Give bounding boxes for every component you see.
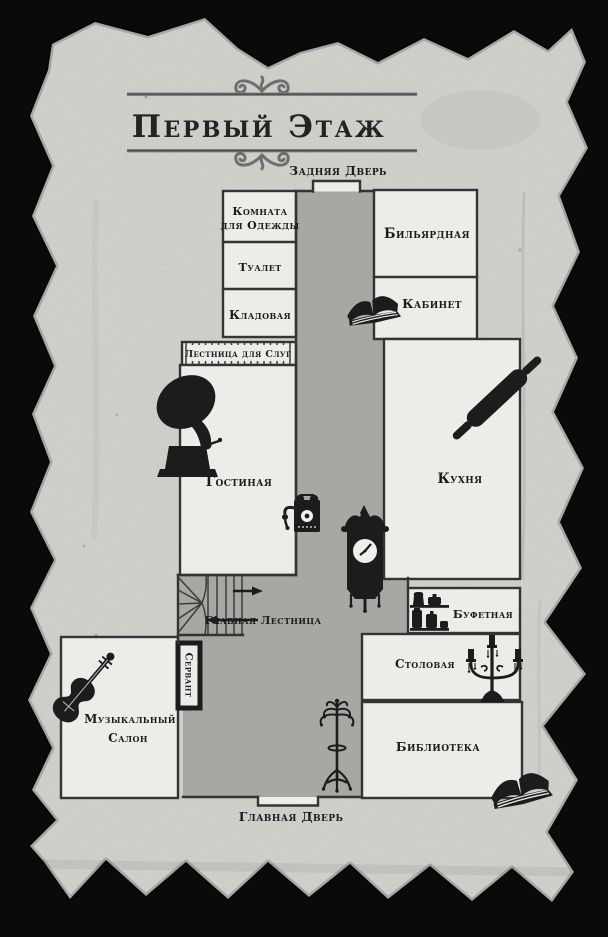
page-title: Первый Этаж	[132, 109, 387, 145]
title-ornament-top	[236, 77, 289, 93]
title-rule-top-core	[127, 94, 417, 95]
cloakroom-label-line1: Комната	[232, 205, 287, 218]
dining-label: Столовая	[395, 657, 455, 671]
music-salon-label-line1: Музыкальный	[84, 712, 176, 726]
floor-plan-svg: Первый Этаж	[0, 0, 608, 937]
billiard-label: Бильярдная	[384, 226, 470, 242]
toilet-label: Туалет	[238, 260, 281, 274]
main-door-label: Главная Дверь	[239, 809, 344, 824]
main-door	[258, 797, 318, 806]
floor-plan-illustration: Первый Этаж	[0, 0, 608, 937]
title-ornament-bottom	[236, 153, 289, 169]
living-room-label: Гостиная	[206, 474, 273, 490]
servants-stairs-label: Лестница для Слуг	[185, 349, 291, 360]
music-salon-label-line2: Салон	[108, 731, 148, 745]
buttery-label: Буфетная	[453, 607, 513, 621]
sideboard-label: Сервант	[183, 653, 194, 698]
library-label: Библиотека	[396, 739, 481, 754]
room-kitchen	[384, 339, 520, 579]
cloakroom-label-line2: для Одежды	[220, 219, 299, 232]
study-label: Кабинет	[402, 296, 462, 311]
pantry-label: Кладовая	[229, 308, 291, 322]
main-stairs-label: Главная Лестница	[205, 614, 322, 627]
title-rule-bottom-core	[127, 150, 417, 151]
kitchen-label: Кухня	[437, 471, 482, 487]
back-door	[313, 181, 360, 192]
back-door-label: Задняя Дверь	[289, 163, 387, 178]
